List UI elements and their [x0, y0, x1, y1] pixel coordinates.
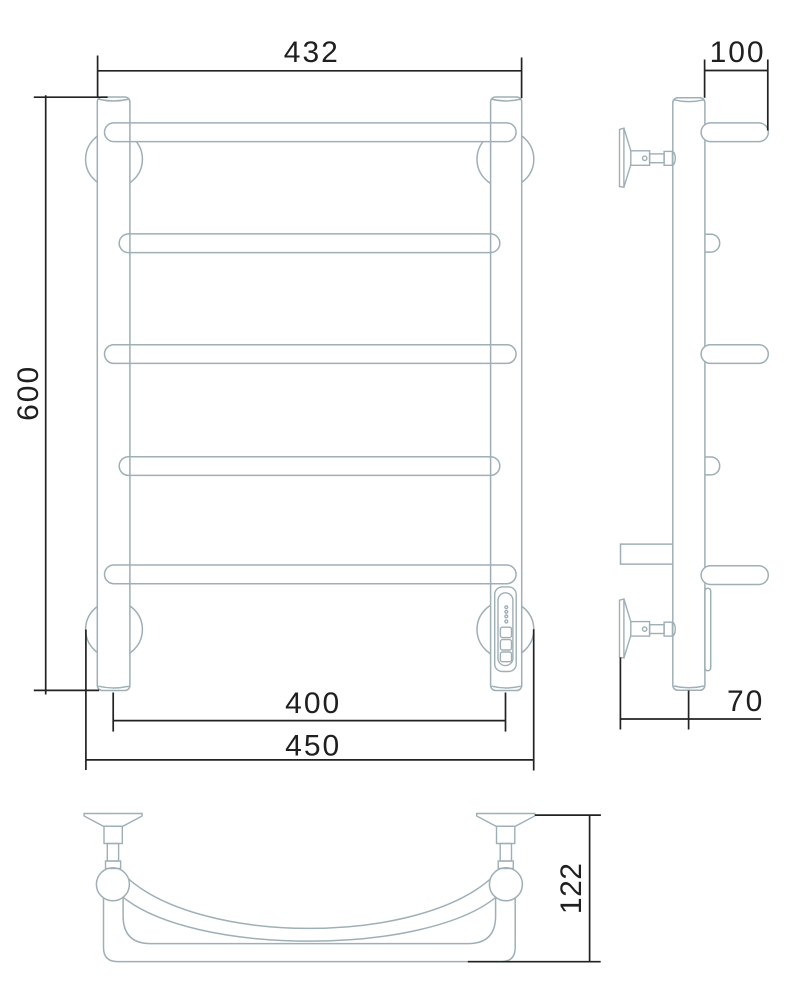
- svg-text:400: 400: [285, 687, 341, 720]
- svg-text:100: 100: [710, 36, 766, 69]
- svg-text:450: 450: [285, 730, 341, 763]
- svg-text:432: 432: [284, 36, 340, 69]
- svg-text:122: 122: [555, 863, 588, 915]
- svg-text:600: 600: [12, 365, 45, 421]
- svg-text:70: 70: [727, 685, 764, 718]
